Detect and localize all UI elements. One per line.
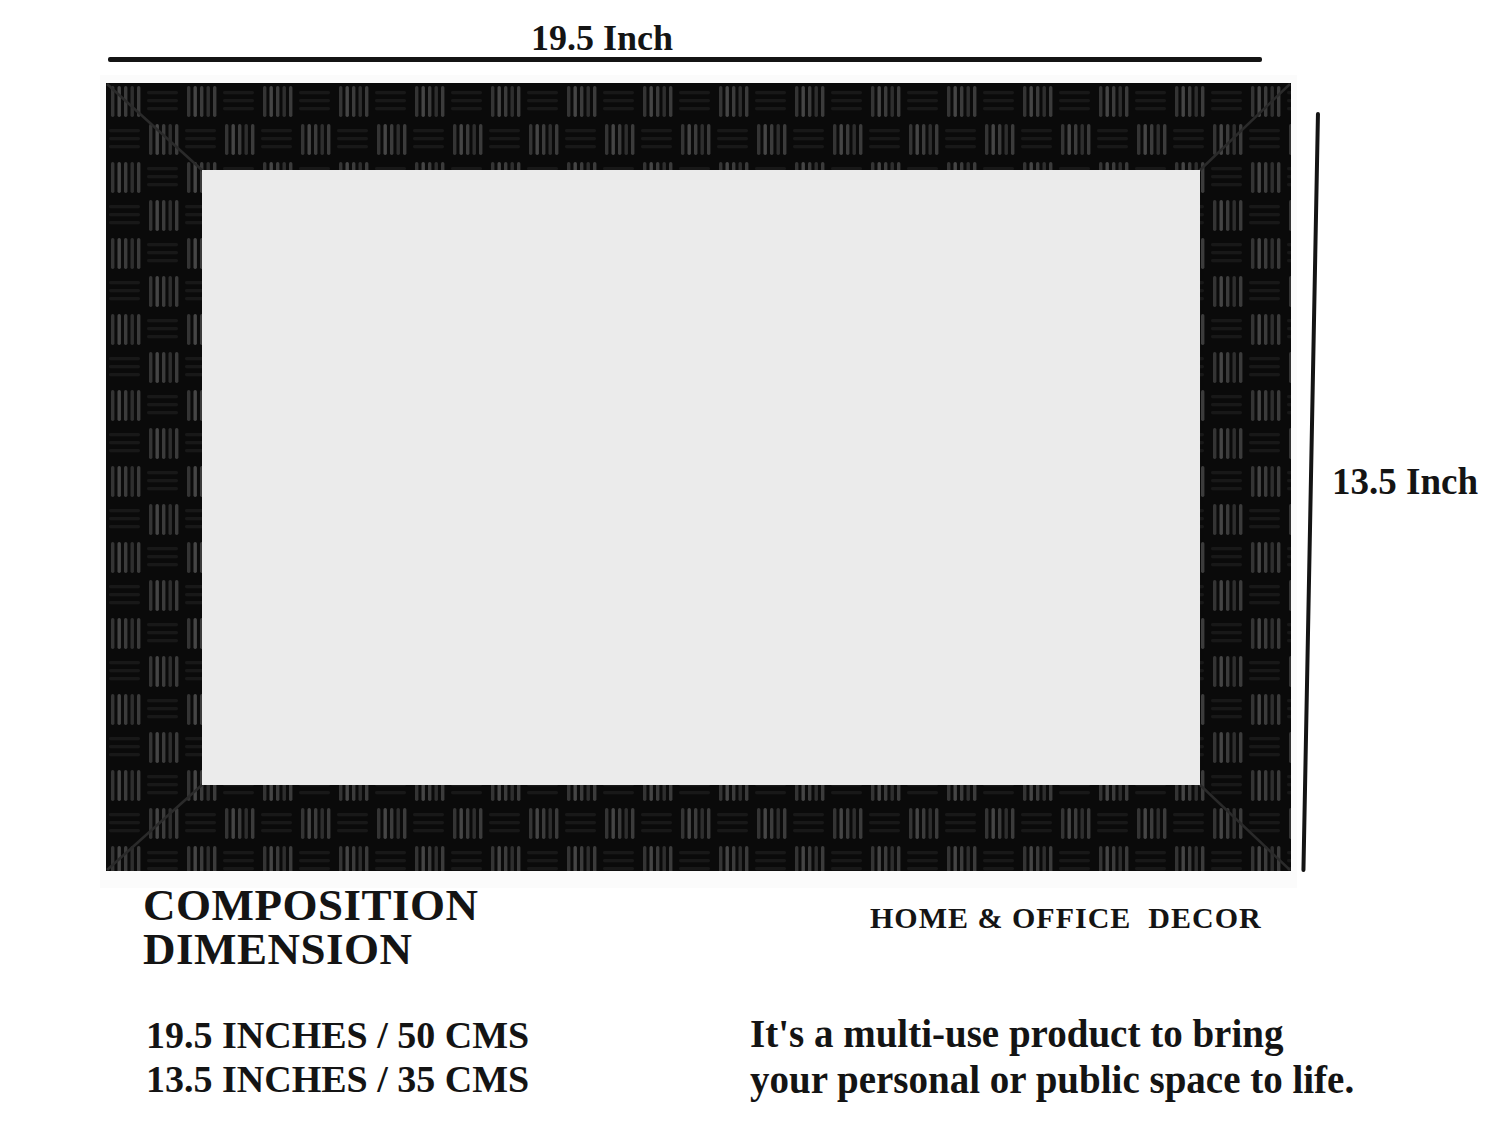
tagline-line2: your personal or public space to life.	[750, 1057, 1354, 1103]
width-dimension-line	[108, 57, 1262, 62]
composition-title-line1: COMPOSITION	[143, 883, 479, 927]
tagline-line1: It's a multi-use product to bring	[750, 1011, 1354, 1057]
size-specs: 19.5 INCHES / 50 CMS 13.5 INCHES / 35 CM…	[146, 1013, 529, 1101]
width-dimension-label: 19.5 Inch	[531, 17, 673, 59]
height-dimension-line	[1301, 112, 1320, 872]
height-dimension-label: 13.5 Inch	[1332, 460, 1478, 503]
picture-frame	[106, 83, 1291, 871]
category-caption: HOME & OFFICE DECOR	[870, 901, 1262, 935]
frame-inner-panel	[202, 170, 1200, 785]
tagline: It's a multi-use product to bring your p…	[750, 1011, 1354, 1103]
size-specs-line1: 19.5 INCHES / 50 CMS	[146, 1013, 529, 1057]
product-dimension-diagram: 19.5 Inch 13.5 Inch COMPOSITION DIMENSIO…	[0, 0, 1500, 1125]
composition-title: COMPOSITION DIMENSION	[143, 883, 479, 971]
size-specs-line2: 13.5 INCHES / 35 CMS	[146, 1057, 529, 1101]
composition-title-line2: DIMENSION	[143, 927, 479, 971]
